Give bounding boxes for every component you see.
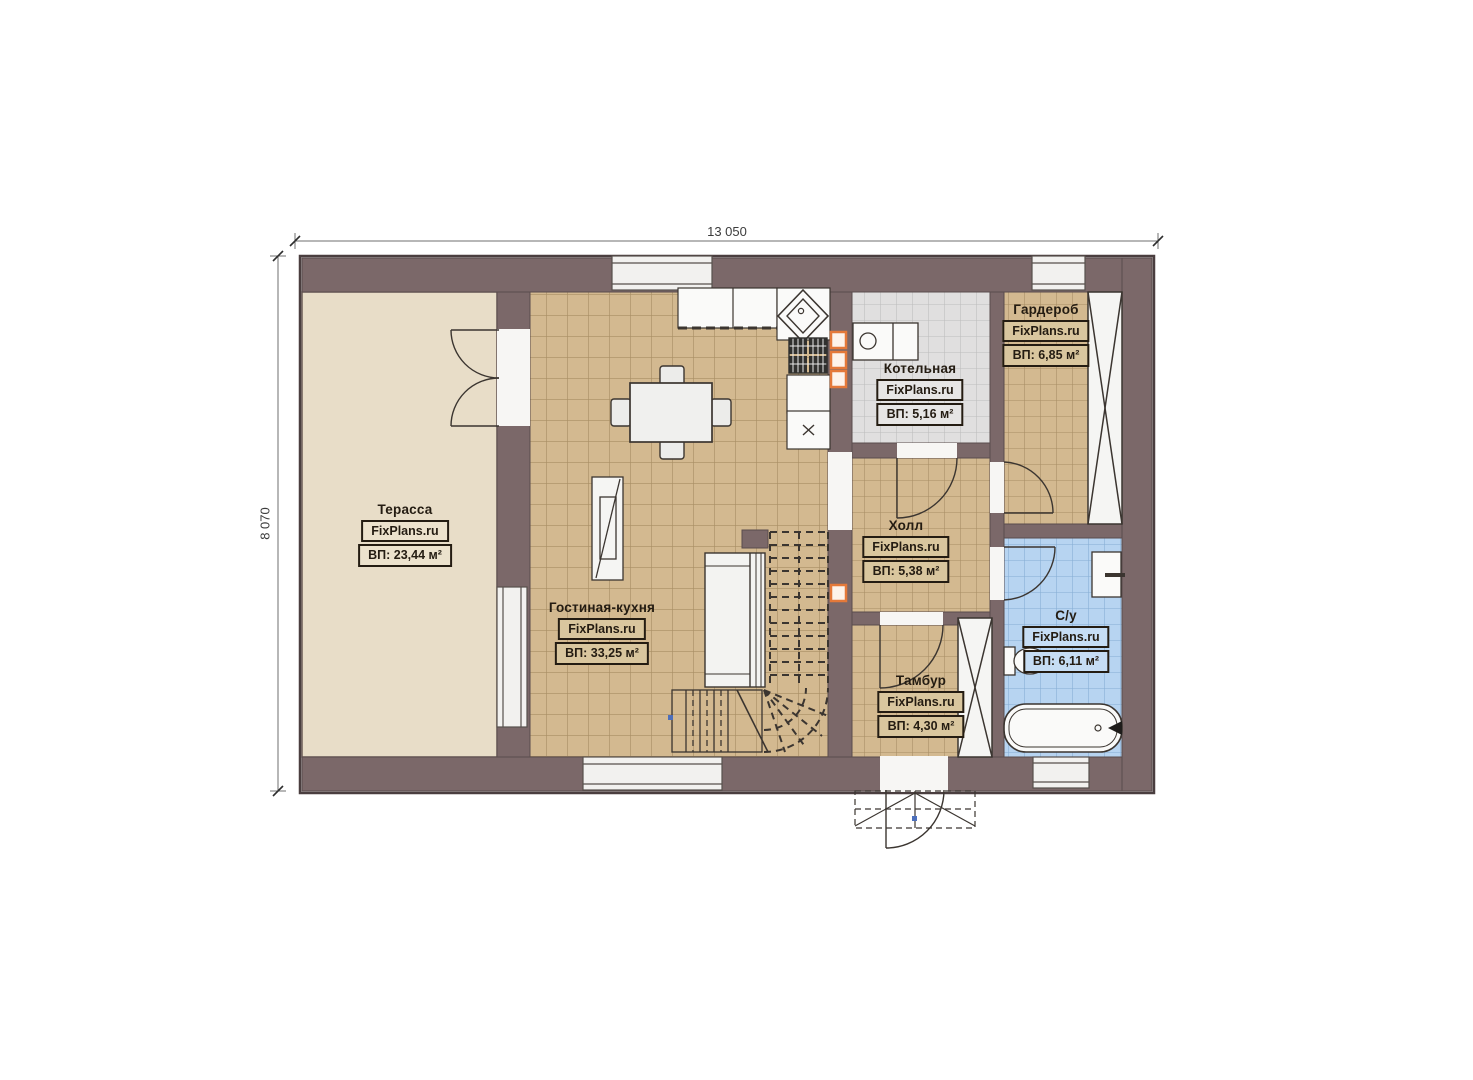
entrance-porch <box>855 791 975 828</box>
bathtub-icon <box>1004 704 1122 752</box>
kitchen-counter <box>678 288 777 328</box>
chair-right <box>711 399 731 426</box>
room-label-hall: Холл FixPlans.ru ВП: 5,38 м² <box>862 518 949 583</box>
room-label-boiler: Котельная FixPlans.ru ВП: 5,16 м² <box>876 361 963 426</box>
window-bottom-bathroom <box>1033 757 1089 788</box>
room-label-living-kitchen: Гостиная-кухня FixPlans.ru ВП: 33,25 м² <box>549 600 655 665</box>
dimension-top-label: 13 050 <box>697 224 757 239</box>
room-area: ВП: 23,44 м² <box>358 544 452 566</box>
watermark: FixPlans.ru <box>1002 320 1089 342</box>
room-name: Холл <box>889 518 924 533</box>
room-area: ВП: 6,85 м² <box>1003 344 1090 366</box>
stair-wall-stub <box>742 530 768 548</box>
floor-plan-drawing <box>0 0 1473 1080</box>
watermark: FixPlans.ru <box>862 536 949 558</box>
watermark: FixPlans.ru <box>877 691 964 713</box>
room-name: Гостиная-кухня <box>549 600 655 615</box>
watermark: FixPlans.ru <box>1022 626 1109 648</box>
room-name: Гардероб <box>1013 302 1078 317</box>
sink-icon <box>1092 552 1125 597</box>
room-name: Котельная <box>884 361 956 376</box>
room-area: ВП: 5,16 м² <box>877 403 964 425</box>
dimension-left-label: 8 070 <box>258 496 273 552</box>
room-label-terrace: Терасса FixPlans.ru ВП: 23,44 м² <box>358 502 452 567</box>
stair-ref-dot <box>668 715 673 720</box>
room-area: ВП: 4,30 м² <box>878 715 965 737</box>
dining-table <box>630 383 712 442</box>
tv-unit <box>592 477 623 580</box>
window-top-living <box>612 256 712 290</box>
watermark: FixPlans.ru <box>361 520 448 542</box>
boiler-unit <box>853 323 918 360</box>
room-area: ВП: 33,25 м² <box>555 642 649 664</box>
room-name: Терасса <box>378 502 433 517</box>
chair-left <box>611 399 631 426</box>
room-name: С/у <box>1055 608 1077 623</box>
porch-ref-dot <box>912 816 917 821</box>
room-name: Тамбур <box>896 673 946 688</box>
window-top-wardrobe <box>1032 256 1085 290</box>
window-terrace-living <box>497 587 527 727</box>
living-kitchen-floor <box>530 292 828 757</box>
floor-plan-page: 13 050 8 070 Терасса FixPlans.ru ВП: 23,… <box>0 0 1473 1080</box>
watermark: FixPlans.ru <box>876 379 963 401</box>
sofa <box>705 553 765 687</box>
room-area: ВП: 6,11 м² <box>1023 650 1109 672</box>
room-label-tambour: Тамбур FixPlans.ru ВП: 4,30 м² <box>877 673 964 738</box>
kitchen-cabinet <box>787 375 830 413</box>
room-label-bathroom: С/у FixPlans.ru ВП: 6,11 м² <box>1022 608 1109 673</box>
watermark: FixPlans.ru <box>558 618 645 640</box>
room-area: ВП: 5,38 м² <box>863 560 950 582</box>
wardrobe-closet <box>1088 292 1122 524</box>
room-label-wardrobe: Гардероб FixPlans.ru ВП: 6,85 м² <box>1002 302 1089 367</box>
window-bottom-living <box>583 757 722 790</box>
